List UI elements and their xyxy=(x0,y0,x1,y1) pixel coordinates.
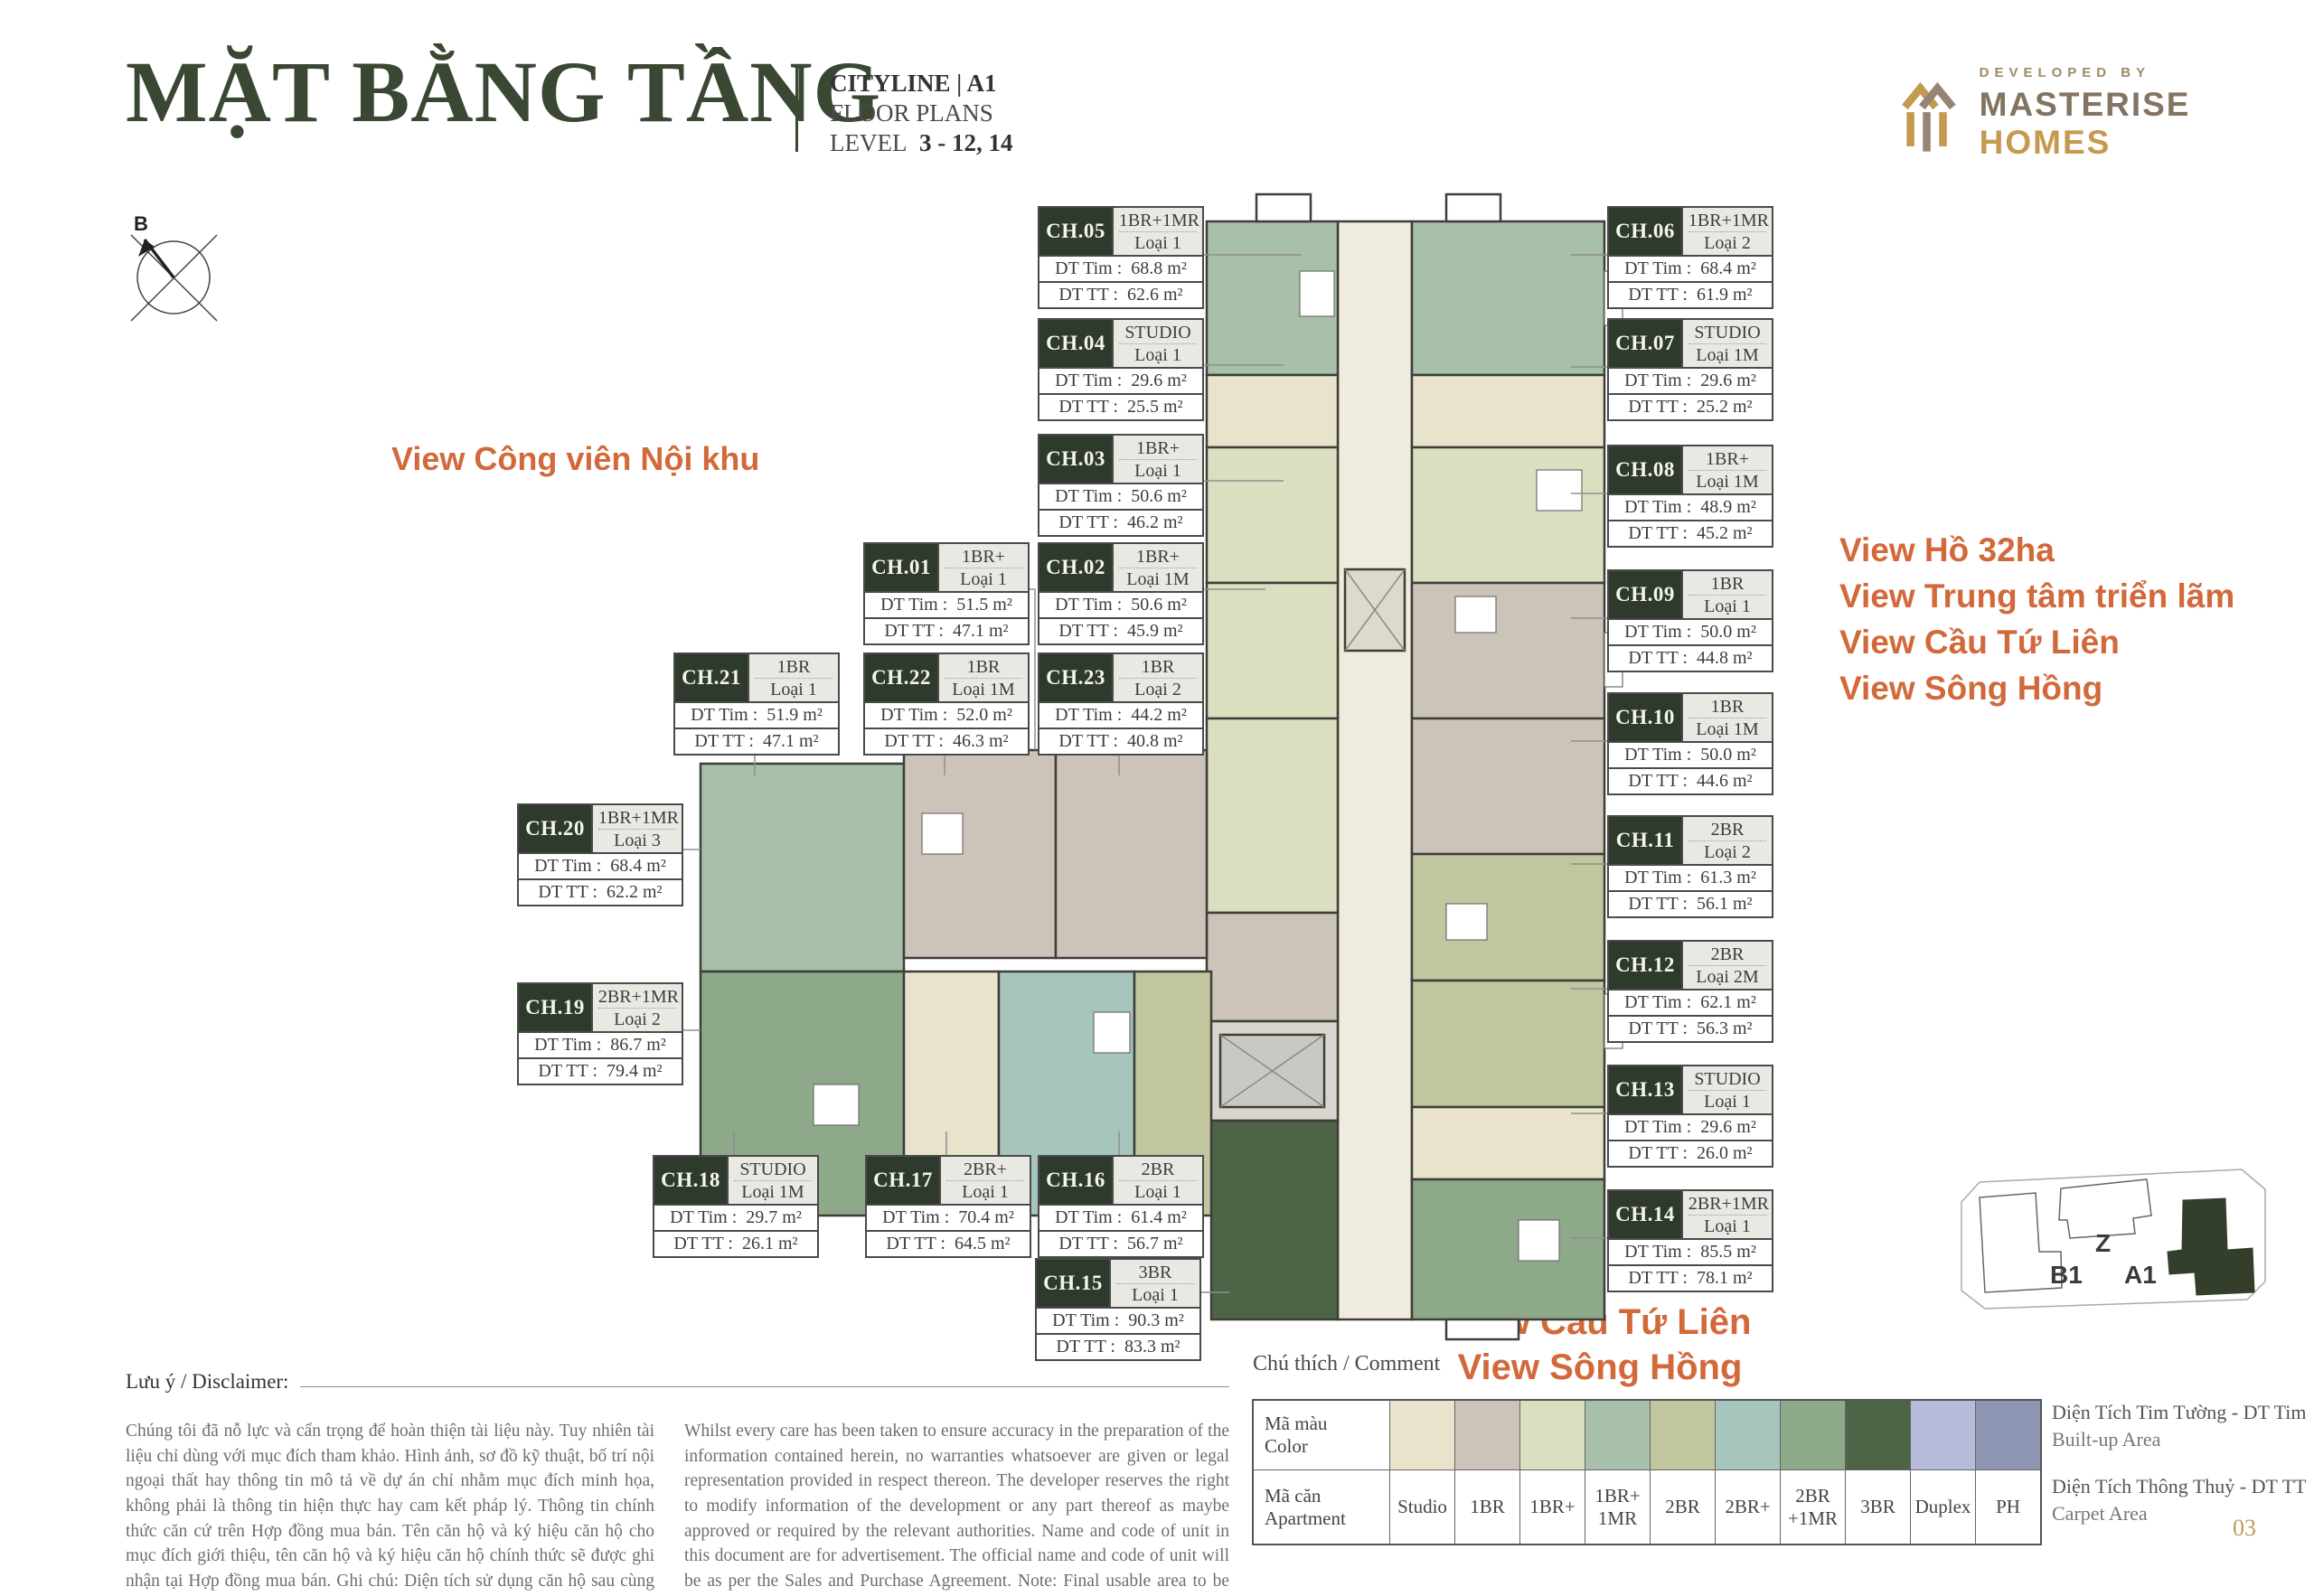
stair-core xyxy=(1345,569,1405,651)
legend-label-2BR: 2BR xyxy=(1650,1469,1715,1544)
unit-label-header: CH.192BR+1MRLoại 2 xyxy=(519,984,682,1031)
unit-variant: Loại 1 xyxy=(1704,596,1751,617)
unit-dt-tim-row: DT Tim :62.1 m² xyxy=(1609,989,1772,1015)
legend-swatch-3BR xyxy=(1845,1401,1910,1469)
compass-icon: B xyxy=(131,212,217,321)
masterise-logo-icon xyxy=(1896,72,1965,155)
legend-swatch-1BR+1MR xyxy=(1585,1401,1650,1469)
legend-label-1BR+: 1BR+ xyxy=(1519,1469,1585,1544)
view-annotation-line: View Sông Hồng xyxy=(1839,665,2234,711)
unit-label-header: CH.162BRLoại 1 xyxy=(1039,1157,1202,1204)
corridor xyxy=(1338,221,1412,1319)
unit-label-header: CH.153BRLoại 1 xyxy=(1037,1260,1199,1307)
unit-label-CH.20: CH.201BR+1MRLoại 3DT Tim :68.4 m²DT TT :… xyxy=(517,803,683,906)
unit-label-header: CH.13STUDIOLoại 1 xyxy=(1609,1066,1772,1113)
unit-variant: Loại 1 xyxy=(962,1181,1009,1203)
unit-type-cell: 1BR+Loại 1 xyxy=(937,544,1028,591)
plan-unit-CH.09 xyxy=(1412,583,1604,718)
unit-label-header: CH.051BR+1MRLoại 1 xyxy=(1039,208,1202,255)
unit-variant: Loại 1M xyxy=(1696,718,1758,740)
unit-label-CH.08: CH.081BR+Loại 1MDT Tim :48.9 m²DT TT :45… xyxy=(1607,445,1773,548)
unit-dt-tim-row: DT Tim :50.0 m² xyxy=(1609,618,1772,644)
unit-code: CH.06 xyxy=(1609,208,1681,255)
unit-dt-tim-row: DT Tim :68.8 m² xyxy=(1039,255,1202,281)
unit-variant: Loại 2M xyxy=(1696,966,1758,988)
legend-table: Mã màuColorMã cănApartmentStudio1BR1BR+1… xyxy=(1252,1399,2042,1545)
unit-type: 1BR+1MR xyxy=(598,807,676,830)
legend-apartment-row-label: Mã cănApartment xyxy=(1254,1469,1389,1544)
unit-label-CH.04: CH.04STUDIOLoại 1DT Tim :29.6 m²DT TT :2… xyxy=(1038,318,1204,421)
unit-dt-tt-row: DT TT :44.6 m² xyxy=(1609,767,1772,793)
unit-code: CH.09 xyxy=(1609,571,1681,618)
plan-unit-CH.21 xyxy=(904,750,1056,958)
unit-type: 2BR+1MR xyxy=(1688,1193,1766,1216)
unit-type: 2BR xyxy=(1119,1159,1197,1181)
plan-unit-CH.04 xyxy=(1207,375,1338,447)
legend-swatch-2BR+1MR xyxy=(1780,1401,1845,1469)
unit-label-CH.14: CH.142BR+1MRLoại 1DT Tim :85.5 m²DT TT :… xyxy=(1607,1189,1773,1292)
legend-label-3BR: 3BR xyxy=(1845,1469,1910,1544)
unit-dt-tim-row: DT Tim :29.6 m² xyxy=(1609,367,1772,393)
unit-type: 2BR+ xyxy=(946,1159,1024,1181)
unit-dt-tim-row: DT Tim :29.7 m² xyxy=(654,1204,817,1230)
plan-unit-CH.07 xyxy=(1412,375,1604,447)
view-annotation-line: View Sông Hồng xyxy=(1419,1345,1781,1390)
unit-label-header: CH.201BR+1MRLoại 3 xyxy=(519,805,682,852)
unit-label-CH.16: CH.162BRLoại 1DT Tim :61.4 m²DT TT :56.7… xyxy=(1038,1155,1204,1258)
unit-variant: Loại 2 xyxy=(1704,232,1751,254)
annotation-view-park: View Công viên Nội khu xyxy=(391,440,759,478)
unit-dt-tim-row: DT Tim :68.4 m² xyxy=(519,852,682,878)
unit-type-cell: 1BR+Loại 1M xyxy=(1112,544,1202,591)
unit-label-header: CH.112BRLoại 2 xyxy=(1609,817,1772,864)
unit-variant: Loại 1M xyxy=(1696,344,1758,366)
svg-text:Z: Z xyxy=(2095,1229,2111,1257)
unit-variant: Loại 1 xyxy=(770,679,817,700)
unit-dt-tt-row: DT TT :25.2 m² xyxy=(1609,393,1772,419)
unit-code: CH.08 xyxy=(1609,446,1681,493)
unit-type: 1BR xyxy=(1688,696,1766,718)
unit-variant: Loại 3 xyxy=(614,830,661,851)
legend-swatch-1BR+ xyxy=(1519,1401,1585,1469)
unit-label-CH.05: CH.051BR+1MRLoại 1DT Tim :68.8 m²DT TT :… xyxy=(1038,206,1204,309)
unit-label-CH.10: CH.101BRLoại 1MDT Tim :50.0 m²DT TT :44.… xyxy=(1607,692,1773,795)
unit-type: 1BR xyxy=(755,656,832,679)
unit-type-cell: 1BR+1MRLoại 1 xyxy=(1112,208,1202,255)
unit-dt-tim-row: DT Tim :61.4 m² xyxy=(1039,1204,1202,1230)
unit-code: CH.07 xyxy=(1609,320,1681,367)
unit-variant: Loại 1M xyxy=(952,679,1014,700)
unit-code: CH.16 xyxy=(1039,1157,1112,1204)
unit-dt-tt-row: DT TT :45.2 m² xyxy=(1609,520,1772,546)
unit-dt-tt-row: DT TT :61.9 m² xyxy=(1609,281,1772,307)
unit-code: CH.10 xyxy=(1609,694,1681,741)
unit-label-CH.09: CH.091BRLoại 1DT Tim :50.0 m²DT TT :44.8… xyxy=(1607,569,1773,672)
unit-type-cell: 1BR+1MRLoại 3 xyxy=(591,805,682,852)
unit-type: 1BR xyxy=(1119,656,1197,679)
unit-type: 1BR+ xyxy=(945,546,1022,568)
unit-type: STUDIO xyxy=(734,1159,812,1181)
view-annotation-line: View Hồ 32ha xyxy=(1839,527,2234,573)
unit-label-CH.15: CH.153BRLoại 1DT Tim :90.3 m²DT TT :83.3… xyxy=(1035,1258,1201,1361)
legend-swatch-2BR xyxy=(1650,1401,1715,1469)
unit-label-CH.02: CH.021BR+Loại 1MDT Tim :50.6 m²DT TT :45… xyxy=(1038,542,1204,645)
unit-variant: Loại 1 xyxy=(1704,1216,1751,1237)
brochure-page: B Z B1 A1 MẶT BẰNG TẦNG CITYLINE | A1 FL… xyxy=(0,0,2314,1596)
unit-type-cell: 1BR+Loại 1M xyxy=(1681,446,1772,493)
unit-label-header: CH.081BR+Loại 1M xyxy=(1609,446,1772,493)
unit-label-CH.13: CH.13STUDIOLoại 1DT Tim :29.6 m²DT TT :2… xyxy=(1607,1065,1773,1168)
unit-type-cell: 2BRLoại 1 xyxy=(1112,1157,1202,1204)
unit-dt-tim-row: DT Tim :86.7 m² xyxy=(519,1031,682,1057)
unit-label-header: CH.091BRLoại 1 xyxy=(1609,571,1772,618)
unit-variant: Loại 1M xyxy=(741,1181,804,1203)
unit-dt-tim-row: DT Tim :85.5 m² xyxy=(1609,1238,1772,1264)
unit-label-header: CH.122BRLoại 2M xyxy=(1609,942,1772,989)
unit-type: 1BR+ xyxy=(1119,546,1197,568)
unit-dt-tt-row: DT TT :64.5 m² xyxy=(867,1230,1030,1256)
unit-label-header: CH.061BR+1MRLoại 2 xyxy=(1609,208,1772,255)
unit-code: CH.12 xyxy=(1609,942,1681,989)
unit-dt-tt-row: DT TT :44.8 m² xyxy=(1609,644,1772,671)
plan-unit-CH.06 xyxy=(1412,221,1604,375)
plan-unit-CH.02 xyxy=(1207,583,1338,718)
unit-dt-tim-row: DT Tim :44.2 m² xyxy=(1039,701,1202,728)
plan-unit-CH.05 xyxy=(1207,221,1338,375)
unit-dt-tim-row: DT Tim :29.6 m² xyxy=(1609,1113,1772,1140)
unit-type: 1BR xyxy=(945,656,1022,679)
unit-dt-tim-row: DT Tim :70.4 m² xyxy=(867,1204,1030,1230)
unit-label-header: CH.011BR+Loại 1 xyxy=(865,544,1028,591)
unit-dt-tim-row: DT Tim :68.4 m² xyxy=(1609,255,1772,281)
header-info: CITYLINE | A1 FLOOR PLANS LEVEL 3 - 12, … xyxy=(830,69,1012,158)
unit-dt-tt-row: DT TT :62.2 m² xyxy=(519,878,682,905)
unit-dt-tt-row: DT TT :26.0 m² xyxy=(1609,1140,1772,1166)
unit-code: CH.11 xyxy=(1609,817,1681,864)
unit-code: CH.19 xyxy=(519,984,591,1031)
unit-type-cell: 1BRLoại 1M xyxy=(937,654,1028,701)
unit-variant: Loại 2 xyxy=(614,1009,661,1030)
unit-dt-tt-row: DT TT :56.7 m² xyxy=(1039,1230,1202,1256)
brand-name: MASTERISE HOMES xyxy=(1980,86,2314,162)
unit-variant: Loại 1 xyxy=(1134,232,1181,254)
unit-dt-tim-row: DT Tim :52.0 m² xyxy=(865,701,1028,728)
unit-dt-tim-row: DT Tim :61.3 m² xyxy=(1609,864,1772,890)
unit-type: 3BR xyxy=(1116,1262,1194,1284)
unit-dt-tim-row: DT Tim :50.0 m² xyxy=(1609,741,1772,767)
unit-dt-tt-row: DT TT :56.1 m² xyxy=(1609,890,1772,916)
unit-label-CH.19: CH.192BR+1MRLoại 2DT Tim :86.7 m²DT TT :… xyxy=(517,982,683,1085)
plan-unit-CH.20 xyxy=(701,764,904,972)
unit-dt-tt-row: DT TT :46.3 m² xyxy=(865,728,1028,754)
unit-label-header: CH.18STUDIOLoại 1M xyxy=(654,1157,817,1204)
plan-unit-CH.01 xyxy=(1207,718,1338,913)
unit-type: 1BR xyxy=(1688,573,1766,596)
developed-by-label: DEVELOPED BY xyxy=(1980,65,2314,80)
unit-code: CH.02 xyxy=(1039,544,1112,591)
legend-swatch-Duplex xyxy=(1910,1401,1975,1469)
unit-type-cell: 1BR+Loại 1 xyxy=(1112,436,1202,483)
legend-color-row-label: Mã màuColor xyxy=(1254,1401,1389,1469)
legend-swatch-PH xyxy=(1975,1401,2040,1469)
unit-type: 1BR+1MR xyxy=(1119,210,1197,232)
unit-label-CH.17: CH.172BR+Loại 1DT Tim :70.4 m²DT TT :64.… xyxy=(865,1155,1031,1258)
unit-label-CH.21: CH.211BRLoại 1DT Tim :51.9 m²DT TT :47.1… xyxy=(673,652,840,756)
unit-type: 2BR+1MR xyxy=(598,986,676,1009)
unit-type-cell: 1BRLoại 1 xyxy=(748,654,838,701)
level-line: LEVEL 3 - 12, 14 xyxy=(830,128,1012,158)
unit-dt-tim-row: DT Tim :51.9 m² xyxy=(675,701,838,728)
unit-code: CH.23 xyxy=(1039,654,1112,701)
unit-variant: Loại 1 xyxy=(1134,344,1181,366)
unit-type-cell: STUDIOLoại 1M xyxy=(1681,320,1772,367)
unit-type-cell: 2BR+1MRLoại 2 xyxy=(591,984,682,1031)
unit-type: 2BR xyxy=(1688,819,1766,841)
legend-label-1BR+1MR: 1BR+ 1MR xyxy=(1585,1469,1650,1544)
unit-type-cell: STUDIOLoại 1 xyxy=(1681,1066,1772,1113)
annotation-views-bottom: View Cầu Tứ LiênView Sông Hồng xyxy=(1419,1300,1781,1390)
legend-swatch-1BR xyxy=(1454,1401,1519,1469)
unit-type-cell: 1BRLoại 1 xyxy=(1681,571,1772,618)
view-annotation-line: View Cầu Tứ Liên xyxy=(1419,1300,1781,1345)
legend-swatch-Studio xyxy=(1389,1401,1454,1469)
page-number: 03 xyxy=(2233,1515,2256,1542)
unit-variant: Loại 1 xyxy=(1704,1091,1751,1113)
unit-code: CH.15 xyxy=(1037,1260,1109,1307)
unit-code: CH.17 xyxy=(867,1157,939,1204)
plan-unit-CH.22 xyxy=(1056,750,1207,958)
unit-dt-tt-row: DT TT :46.2 m² xyxy=(1039,509,1202,535)
floor-plans-subtitle: FLOOR PLANS xyxy=(830,99,1012,128)
unit-variant: Loại 1 xyxy=(1134,1181,1181,1203)
unit-dt-tim-row: DT Tim :50.6 m² xyxy=(1039,483,1202,509)
unit-label-CH.23: CH.231BRLoại 2DT Tim :44.2 m²DT TT :40.8… xyxy=(1038,652,1204,756)
plan-unit-CH.11 xyxy=(1412,854,1604,981)
plan-unit-CH.03 xyxy=(1207,447,1338,583)
unit-dt-tim-row: DT Tim :29.6 m² xyxy=(1039,367,1202,393)
legend-note-builtup: Diện Tích Tim Tường - DT TimBuilt-up Are… xyxy=(2052,1399,2307,1453)
unit-label-CH.06: CH.061BR+1MRLoại 2DT Tim :68.4 m²DT TT :… xyxy=(1607,206,1773,309)
unit-dt-tt-row: DT TT :25.5 m² xyxy=(1039,393,1202,419)
unit-type-cell: 1BR+1MRLoại 2 xyxy=(1681,208,1772,255)
unit-type-cell: 2BRLoại 2 xyxy=(1681,817,1772,864)
unit-variant: Loại 1M xyxy=(1696,471,1758,493)
unit-type-cell: 2BR+1MRLoại 1 xyxy=(1681,1191,1772,1238)
plan-unit-CH.15 xyxy=(1211,1121,1338,1319)
unit-type-cell: 1BRLoại 1M xyxy=(1681,694,1772,741)
unit-type: STUDIO xyxy=(1688,1068,1766,1091)
unit-type: STUDIO xyxy=(1119,322,1197,344)
plan-unit-CH.08 xyxy=(1412,447,1604,583)
developer-logo: DEVELOPED BY MASTERISE HOMES xyxy=(1896,65,2314,162)
legend-label-Studio: Studio xyxy=(1389,1469,1454,1544)
unit-dt-tt-row: DT TT :56.3 m² xyxy=(1609,1015,1772,1041)
unit-label-header: CH.021BR+Loại 1M xyxy=(1039,544,1202,591)
unit-code: CH.18 xyxy=(654,1157,727,1204)
unit-type-cell: 1BRLoại 2 xyxy=(1112,654,1202,701)
unit-code: CH.22 xyxy=(865,654,937,701)
disclaimer-rule xyxy=(300,1386,1229,1387)
unit-dt-tt-row: DT TT :26.1 m² xyxy=(654,1230,817,1256)
unit-variant: Loại 2 xyxy=(1704,841,1751,863)
legend-label-1BR: 1BR xyxy=(1454,1469,1519,1544)
unit-code: CH.21 xyxy=(675,654,748,701)
page-title: MẶT BẰNG TẦNG xyxy=(126,47,881,138)
unit-type: 1BR+ xyxy=(1119,437,1197,460)
core xyxy=(1207,1021,1338,1121)
unit-label-header: CH.04STUDIOLoại 1 xyxy=(1039,320,1202,367)
unit-code: CH.03 xyxy=(1039,436,1112,483)
disclaimer-vietnamese: Chúng tôi đã nỗ lực và cẩn trọng để hoàn… xyxy=(126,1419,654,1596)
plan-unit-CH.14 xyxy=(1412,1179,1604,1319)
unit-code: CH.01 xyxy=(865,544,937,591)
unit-dt-tim-row: DT Tim :48.9 m² xyxy=(1609,493,1772,520)
legend-label-Duplex: Duplex xyxy=(1910,1469,1975,1544)
unit-label-CH.18: CH.18STUDIOLoại 1MDT Tim :29.7 m²DT TT :… xyxy=(653,1155,819,1258)
svg-text:B1: B1 xyxy=(2050,1261,2083,1289)
unit-variant: Loại 1 xyxy=(1134,460,1181,482)
unit-type: 1BR+1MR xyxy=(1688,210,1766,232)
unit-code: CH.13 xyxy=(1609,1066,1681,1113)
unit-dt-tt-row: DT TT :78.1 m² xyxy=(1609,1264,1772,1291)
legend-label-2BR+: 2BR+ xyxy=(1715,1469,1780,1544)
unit-type: STUDIO xyxy=(1688,322,1766,344)
unit-variant: Loại 2 xyxy=(1134,679,1181,700)
unit-label-header: CH.031BR+Loại 1 xyxy=(1039,436,1202,483)
plan-unit-CH.23 xyxy=(1207,913,1338,1021)
legend-swatch-2BR+ xyxy=(1715,1401,1780,1469)
disclaimer-label: Lưu ý / Disclaimer: xyxy=(126,1370,288,1394)
unit-dt-tt-row: DT TT :47.1 m² xyxy=(865,617,1028,643)
unit-label-CH.22: CH.221BRLoại 1MDT Tim :52.0 m²DT TT :46.… xyxy=(863,652,1030,756)
unit-variant: Loại 1 xyxy=(1132,1284,1179,1306)
unit-type-cell: STUDIOLoại 1 xyxy=(1112,320,1202,367)
svg-text:A1: A1 xyxy=(2124,1261,2157,1289)
plan-unit-CH.12 xyxy=(1412,981,1604,1107)
unit-code: CH.14 xyxy=(1609,1191,1681,1238)
unit-label-header: CH.172BR+Loại 1 xyxy=(867,1157,1030,1204)
disclaimer-english: Whilst every care has been taken to ensu… xyxy=(684,1419,1229,1596)
unit-label-header: CH.211BRLoại 1 xyxy=(675,654,838,701)
unit-variant: Loại 1 xyxy=(960,568,1007,590)
unit-dt-tt-row: DT TT :45.9 m² xyxy=(1039,617,1202,643)
unit-type: 2BR xyxy=(1688,944,1766,966)
unit-label-header: CH.231BRLoại 2 xyxy=(1039,654,1202,701)
unit-label-header: CH.221BRLoại 1M xyxy=(865,654,1028,701)
unit-dt-tt-row: DT TT :47.1 m² xyxy=(675,728,838,754)
header-divider xyxy=(795,67,798,152)
unit-dt-tim-row: DT Tim :90.3 m² xyxy=(1037,1307,1199,1333)
unit-type-cell: STUDIOLoại 1M xyxy=(727,1157,817,1204)
legend-label-PH: PH xyxy=(1975,1469,2040,1544)
view-annotation-line: View Trung tâm triển lãm xyxy=(1839,573,2234,619)
unit-type-cell: 2BR+Loại 1 xyxy=(939,1157,1030,1204)
unit-type-cell: 3BRLoại 1 xyxy=(1109,1260,1199,1307)
unit-code: CH.04 xyxy=(1039,320,1112,367)
legend-label-2BR+1MR: 2BR +1MR xyxy=(1780,1469,1845,1544)
unit-dt-tt-row: DT TT :83.3 m² xyxy=(1037,1333,1199,1359)
unit-dt-tim-row: DT Tim :51.5 m² xyxy=(865,591,1028,617)
unit-label-header: CH.07STUDIOLoại 1M xyxy=(1609,320,1772,367)
legend-title: Chú thích / Comment xyxy=(1253,1352,1440,1376)
unit-type-cell: 2BRLoại 2M xyxy=(1681,942,1772,989)
legend-note-carpet: Diện Tích Thông Thuỷ - DT TTCarpet Area xyxy=(2052,1473,2307,1527)
unit-label-CH.12: CH.122BRLoại 2MDT Tim :62.1 m²DT TT :56.… xyxy=(1607,940,1773,1043)
unit-code: CH.05 xyxy=(1039,208,1112,255)
plan-unit-CH.10 xyxy=(1412,718,1604,854)
site-minimap: Z B1 A1 xyxy=(1961,1169,2265,1309)
unit-label-CH.01: CH.011BR+Loại 1DT Tim :51.5 m²DT TT :47.… xyxy=(863,542,1030,645)
project-name: CITYLINE | A1 xyxy=(830,69,1012,99)
view-annotation-line: View Cầu Tứ Liên xyxy=(1839,619,2234,665)
unit-label-header: CH.101BRLoại 1M xyxy=(1609,694,1772,741)
unit-label-CH.11: CH.112BRLoại 2DT Tim :61.3 m²DT TT :56.1… xyxy=(1607,815,1773,918)
unit-variant: Loại 1M xyxy=(1126,568,1189,590)
svg-text:B: B xyxy=(134,212,148,235)
unit-dt-tt-row: DT TT :40.8 m² xyxy=(1039,728,1202,754)
unit-dt-tt-row: DT TT :79.4 m² xyxy=(519,1057,682,1084)
unit-dt-tt-row: DT TT :62.6 m² xyxy=(1039,281,1202,307)
unit-label-header: CH.142BR+1MRLoại 1 xyxy=(1609,1191,1772,1238)
unit-code: CH.20 xyxy=(519,805,591,852)
plan-unit-CH.13 xyxy=(1412,1107,1604,1179)
unit-dt-tim-row: DT Tim :50.6 m² xyxy=(1039,591,1202,617)
unit-type: 1BR+ xyxy=(1688,448,1766,471)
annotation-views-right: View Hồ 32haView Trung tâm triển lãmView… xyxy=(1839,527,2234,711)
unit-label-CH.03: CH.031BR+Loại 1DT Tim :50.6 m²DT TT :46.… xyxy=(1038,434,1204,537)
unit-label-CH.07: CH.07STUDIOLoại 1MDT Tim :29.6 m²DT TT :… xyxy=(1607,318,1773,421)
lift-core xyxy=(1220,1035,1324,1107)
